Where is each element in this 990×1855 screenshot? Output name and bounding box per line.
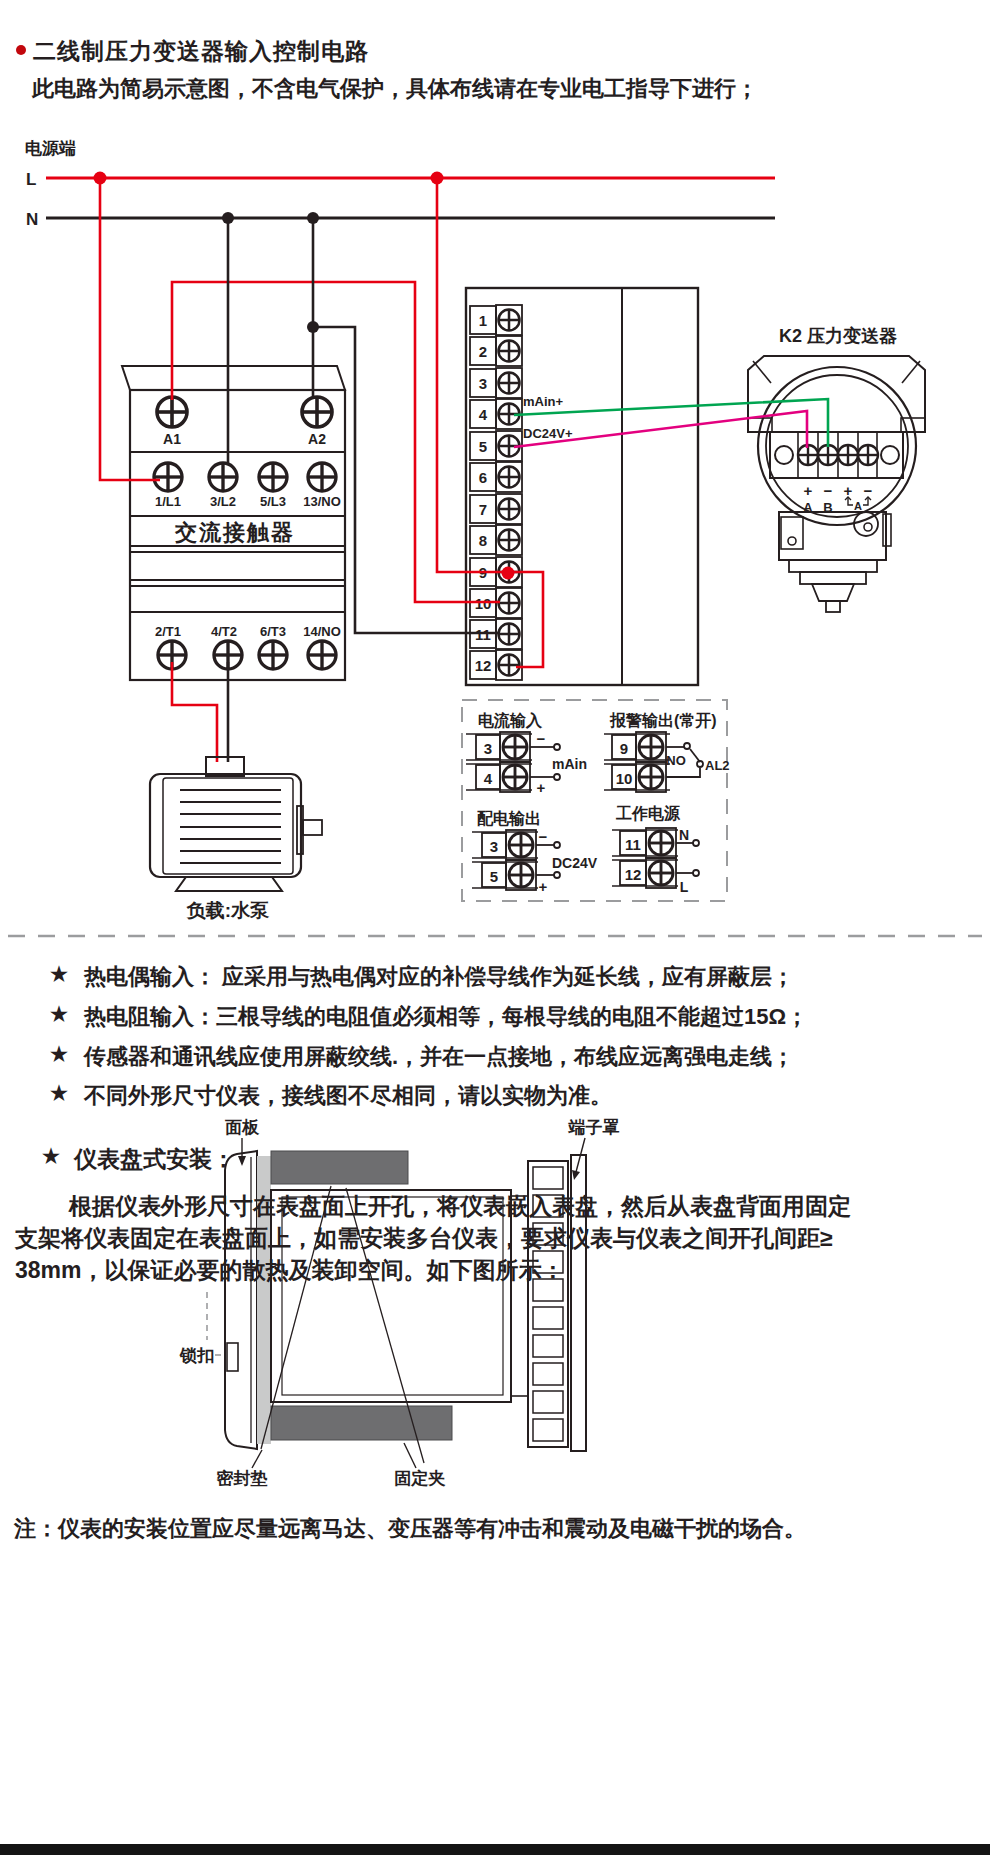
svg-text:mAin: mAin — [552, 756, 587, 772]
svg-text:12: 12 — [625, 866, 642, 883]
note-item: ★ 不同外形尺寸仪表，接线图不尽相同，请以实物为准。 — [50, 1081, 970, 1111]
svg-text:10: 10 — [475, 595, 492, 612]
svg-text:2: 2 — [479, 343, 487, 360]
svg-text:3: 3 — [490, 838, 498, 855]
fixing-clip-top — [271, 1151, 408, 1184]
svg-text:13/NO: 13/NO — [303, 494, 341, 509]
instrument-box: 1 2 3 4 5 6 7 8 9 10 11 12 mAin+ DC24V+ — [466, 288, 698, 685]
svg-text:12: 12 — [475, 657, 492, 674]
note-item: ★ 热电阻输入：三根导线的电阻值必须相等，每根导线的电阻不能超过15Ω； — [50, 1002, 970, 1032]
svg-text:6: 6 — [479, 469, 487, 486]
screw-terminal — [308, 641, 336, 669]
ac-contactor: A1 A2 1/L1 3/L2 5/L3 13/NO 交流接触器 2/T1 4/… — [122, 366, 345, 680]
motor-caption: 负载:水泵 — [186, 900, 270, 921]
svg-text:−: − — [824, 482, 833, 499]
line-n-label: N — [26, 210, 38, 229]
note-text: 不同外形尺寸仪表，接线图不尽相同，请以实物为准。 — [84, 1081, 612, 1111]
panel-label: 面板 — [225, 1118, 260, 1137]
line-l-label: L — [26, 170, 36, 189]
paragraph-line: 根据仪表外形尺寸在表盘面上开孔，将仪表嵌入表盘，然后从表盘背面用固定 — [15, 1190, 977, 1222]
footer-note: 注：仪表的安装位置应尽量远离马达、变压器等有冲击和震动及电磁干扰的场合。 — [14, 1514, 984, 1544]
svg-text:1: 1 — [479, 312, 487, 329]
motor-base — [176, 877, 282, 891]
screw-terminal — [308, 463, 336, 491]
page: 二线制压力变送器输入控制电路 此电路为简易示意图，不含电气保护，具体布线请在专业… — [0, 0, 990, 1855]
contactor-name: 交流接触器 — [174, 520, 295, 545]
note-item: ★ 传感器和通讯线应使用屏蔽绞线.，并在一点接地，布线应远离强电走线； — [50, 1042, 970, 1072]
note-text: 热电阻输入：三根导线的电阻值必须相等，每根导线的电阻不能超过15Ω； — [84, 1002, 808, 1032]
svg-text:−: − — [537, 730, 546, 747]
lock-label: 锁扣 — [179, 1346, 214, 1365]
svg-text:DC24V: DC24V — [552, 855, 598, 871]
svg-text:5: 5 — [490, 868, 498, 885]
star-icon: ★ — [42, 1144, 74, 1175]
screw-terminal — [302, 397, 332, 427]
install-heading: ★ 仪表盘式安装： — [42, 1144, 235, 1175]
install-heading-text: 仪表盘式安装： — [74, 1144, 235, 1175]
svg-text:3/L2: 3/L2 — [210, 494, 236, 509]
terminal-function-panels: 电流输入 3 − mAin 4 + — [462, 700, 730, 901]
instrument-terminal-strip: 1 2 3 4 5 6 7 8 9 10 11 12 — [470, 305, 522, 680]
svg-text:3: 3 — [484, 740, 492, 757]
svg-text:电流输入: 电流输入 — [478, 711, 543, 729]
svg-text:报警输出(常开): 报警输出(常开) — [609, 712, 717, 729]
note-text: 传感器和通讯线应使用屏蔽绞线.，并在一点接地，布线应远离强电走线； — [84, 1042, 794, 1072]
svg-text:5/L3: 5/L3 — [260, 494, 286, 509]
alarm-output-panel: 报警输出(常开) 9 NO AL2 10 — [604, 712, 730, 792]
svg-text:5: 5 — [479, 438, 487, 455]
svg-text:N: N — [679, 827, 689, 843]
dist-output-panel: 配电输出 3 − DC24V 5 + — [472, 810, 598, 895]
svg-text:+: + — [537, 779, 546, 796]
power-rails: 电源端 L N — [25, 139, 775, 229]
svg-text:9: 9 — [620, 740, 628, 757]
svg-text:4: 4 — [479, 406, 488, 423]
svg-text:11: 11 — [625, 836, 641, 853]
coil-a2-label: A2 — [308, 431, 326, 447]
svg-text:+: + — [539, 878, 548, 895]
gasket-label: 密封垫 — [217, 1469, 268, 1488]
install-paragraph: 根据仪表外形尺寸在表盘面上开孔，将仪表嵌入表盘，然后从表盘背面用固定 支架将仪表… — [15, 1190, 977, 1286]
screw-terminal — [259, 641, 287, 669]
svg-text:NO: NO — [666, 753, 686, 768]
svg-text:工作电源: 工作电源 — [615, 805, 681, 822]
star-icon: ★ — [50, 962, 84, 992]
screw-terminal — [154, 463, 182, 491]
panel-mount-diagram: 面板 端子罩 — [179, 1118, 620, 1488]
svg-text:11: 11 — [475, 626, 491, 643]
current-input-panel: 电流输入 3 − mAin 4 + — [466, 711, 587, 796]
wiring-diagram: 电源端 L N A1 A2 — [0, 0, 990, 1855]
screw-terminal — [157, 397, 187, 427]
motor: 负载:水泵 — [150, 757, 322, 921]
svg-text:AL2: AL2 — [705, 758, 730, 773]
svg-text:A: A — [854, 500, 862, 512]
fixing-clip-bottom — [271, 1406, 452, 1440]
screw-terminal — [209, 463, 237, 491]
svg-text:14/NO: 14/NO — [303, 624, 341, 639]
paragraph-line: 支架将仪表固定在表盘面上，如需安装多台仪表，要求仪表与仪表之间开孔间距≥ — [15, 1222, 977, 1254]
svg-text:+: + — [804, 482, 813, 499]
cover-label: 端子罩 — [568, 1118, 620, 1137]
star-icon: ★ — [50, 1081, 84, 1111]
svg-text:L: L — [680, 879, 689, 895]
clip-label: 固定夹 — [395, 1469, 446, 1488]
star-icon: ★ — [50, 1002, 84, 1032]
screw-terminal — [259, 463, 287, 491]
svg-text:8: 8 — [479, 532, 487, 549]
note-item: ★ 热电偶输入： 应采用与热电偶对应的补偿导线作为延长线，应有屏蔽层； — [50, 962, 970, 992]
pressure-transmitter: K2 压力变送器 + − + − A B — [748, 326, 925, 612]
svg-text:4: 4 — [484, 770, 493, 787]
power-label: 电源端 — [25, 139, 76, 158]
bottom-bar — [0, 1844, 990, 1855]
svg-text:6/T3: 6/T3 — [260, 624, 286, 639]
dc24v-plus-label: DC24V+ — [523, 426, 573, 441]
star-icon: ★ — [50, 1042, 84, 1072]
note-text: 热电偶输入： 应采用与热电偶对应的补偿导线作为延长线，应有屏蔽层； — [84, 962, 794, 992]
work-power-panel: 工作电源 11 N 12 L — [612, 805, 699, 895]
svg-text:配电输出: 配电输出 — [477, 810, 541, 827]
svg-text:10: 10 — [616, 770, 633, 787]
svg-text:1/L1: 1/L1 — [155, 494, 181, 509]
svg-text:3: 3 — [479, 375, 487, 392]
svg-text:−: − — [539, 828, 548, 845]
latch — [227, 1343, 238, 1371]
svg-text:4/T2: 4/T2 — [211, 624, 237, 639]
svg-text:7: 7 — [479, 501, 487, 518]
coil-a1-label: A1 — [163, 431, 181, 447]
transmitter-title: K2 压力变送器 — [779, 326, 897, 346]
svg-text:2/T1: 2/T1 — [155, 624, 181, 639]
main-plus-label: mAin+ — [523, 394, 564, 409]
paragraph-line: 38mm，以保证必要的散热及装卸空间。如下图所示： — [15, 1254, 977, 1286]
